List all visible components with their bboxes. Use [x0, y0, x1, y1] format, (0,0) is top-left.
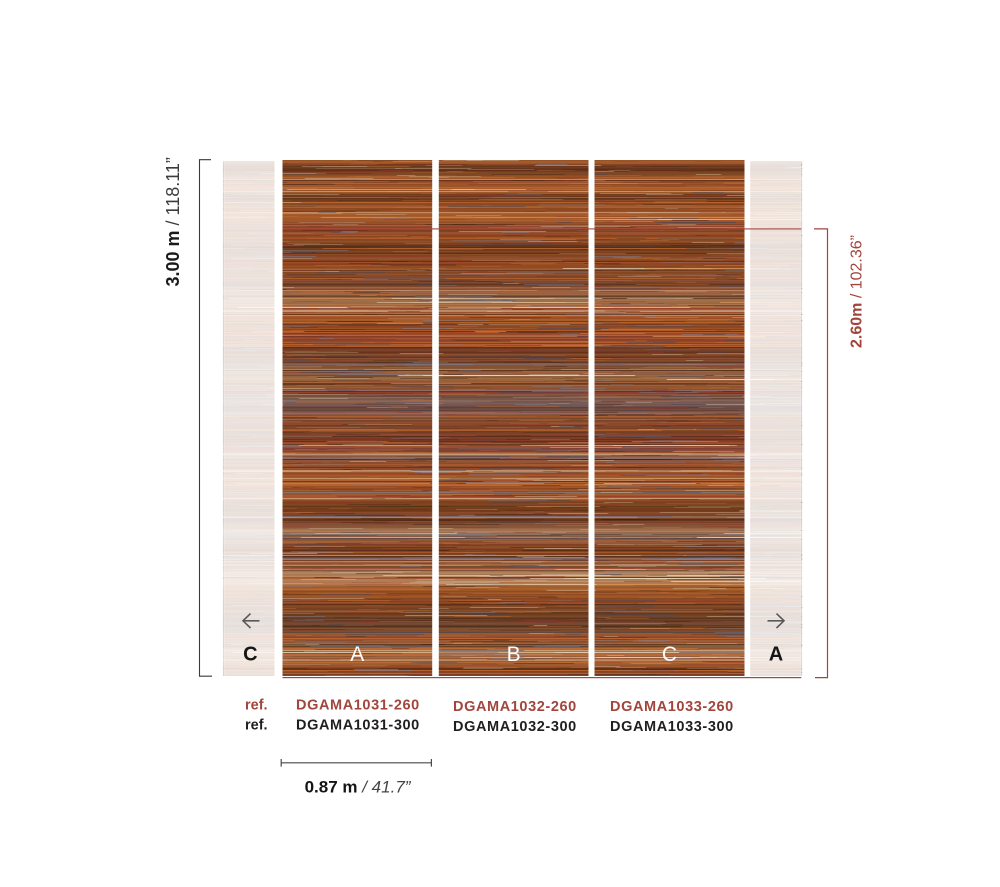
- svg-text:B: B: [507, 643, 521, 666]
- svg-text:ref.: ref.: [245, 718, 268, 734]
- svg-text:DGAMA1032-300: DGAMA1032-300: [453, 719, 577, 735]
- svg-text:A: A: [769, 643, 783, 665]
- svg-text:C: C: [243, 643, 257, 665]
- svg-text:A: A: [350, 643, 364, 666]
- svg-text:DGAMA1033-260: DGAMA1033-260: [610, 699, 734, 715]
- svg-text:C: C: [662, 643, 677, 666]
- svg-text:3.00 m / 118.11”: 3.00 m / 118.11”: [163, 157, 183, 286]
- svg-text:DGAMA1033-300: DGAMA1033-300: [610, 719, 734, 735]
- svg-text:ref.: ref.: [245, 698, 268, 714]
- svg-text:2.60m / 102.36”: 2.60m / 102.36”: [849, 235, 866, 348]
- svg-text:DGAMA1032-260: DGAMA1032-260: [453, 699, 577, 715]
- svg-text:DGAMA1031-260: DGAMA1031-260: [296, 698, 420, 714]
- svg-text:0.87 m / 41.7”: 0.87 m / 41.7”: [305, 778, 412, 797]
- svg-text:DGAMA1031-300: DGAMA1031-300: [296, 718, 420, 734]
